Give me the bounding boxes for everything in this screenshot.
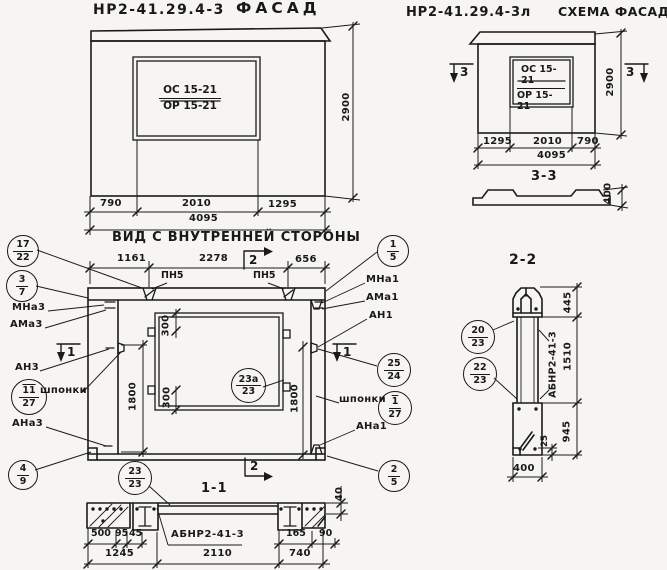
facade-dim-4095: 4095 [189, 214, 218, 224]
section11-dim-90: 90 [319, 529, 332, 539]
section11-dim-45: 45 [129, 529, 142, 539]
callout-2-5: 2 5 [378, 460, 410, 492]
callout-20-23: 20 23 [461, 320, 495, 354]
section-mark-1-right: 1 [343, 346, 351, 358]
main-dim-300-bottom: 300 [162, 386, 173, 410]
callout-1-27: 1 27 [378, 391, 412, 425]
schema-window-mark-top: ОС 15-21 [517, 64, 565, 89]
section-1-1-title: 1-1 [201, 482, 228, 495]
callout-23a-23: 23а 23 [231, 368, 266, 403]
section-3-3-title: 3-3 [531, 170, 558, 183]
section-2-2-title: 2-2 [509, 253, 537, 267]
callout-11-27: 11 27 [11, 379, 47, 415]
inner-view-title: ВИД С ВНУТРЕННЕЙ СТОРОНЫ [112, 231, 361, 244]
main-dim-1800-left: 1800 [128, 382, 139, 412]
schema-section-mark-3-right: 3 [626, 66, 634, 78]
schema-dim-2900: 2900 [605, 65, 617, 99]
facade-window-mark: ОС 15-21 ОР 15-21 [156, 84, 224, 112]
callout-3-7: 3 7 [6, 270, 38, 302]
facade-window-mark-top: ОС 15-21 [159, 84, 221, 99]
anchor-label-mna1: МНа1 [366, 275, 399, 285]
callout-4-9: 4 9 [8, 460, 38, 490]
schema-title-label: СХЕМА ФАСАДА [558, 6, 667, 19]
main-dim-1800-right: 1800 [290, 384, 301, 414]
profile-3-3-dim-400: 400 [603, 181, 614, 207]
pn5-label-left: ПН5 [161, 271, 184, 281]
section22-part-label: АБНР2-41-3 [548, 331, 559, 399]
section11-dim-40: 40 [335, 485, 345, 503]
facade-dim-1295: 1295 [268, 200, 297, 210]
facade-title-label: ФАСАД [236, 1, 321, 17]
section22-dim-445: 445 [563, 291, 574, 315]
schema-dim-790: 790 [577, 137, 599, 147]
section11-dim-500: 500 [91, 529, 111, 539]
schema-title-code: НР2-41.29.4-3л [406, 6, 531, 19]
callout-23-23: 23 23 [118, 461, 152, 495]
callout-25-24: 25 24 [377, 353, 411, 387]
schema-section-mark-3-left: 3 [460, 66, 468, 78]
facade-window-mark-bottom: ОР 15-21 [163, 99, 217, 112]
shponki-label-left: шпонки [40, 386, 87, 396]
callout-22-23: 22 23 [463, 357, 497, 391]
section22-dim-945: 945 [562, 420, 573, 444]
section22-dim-1510: 1510 [563, 343, 574, 371]
facade-dim-2010: 2010 [182, 199, 211, 209]
anchor-label-an1: АН1 [369, 311, 393, 321]
section22-dim-25: 25 [540, 433, 550, 449]
facade-title-code: НР2-41.29.4-3 [93, 3, 225, 17]
section11-part-label: АБНР2-41-3 [171, 530, 244, 540]
anchor-label-an3: АН3 [15, 363, 39, 373]
section-mark-2-top: 2 [249, 254, 257, 266]
schema-dim-2010: 2010 [533, 137, 562, 147]
section11-dim-740: 740 [289, 549, 311, 559]
facade-dim-790: 790 [100, 199, 122, 209]
schema-window-mark-bottom: ОР 15-21 [517, 89, 565, 112]
section11-dim-95: 95 [115, 529, 128, 539]
facade-dim-2900: 2900 [341, 90, 353, 124]
pn5-label-right: ПН5 [253, 271, 276, 281]
anchor-label-ana3: АНа3 [12, 419, 43, 429]
anchor-label-ama3: АМа3 [10, 320, 43, 330]
blueprint-sheet: НР2-41.29.4-3 ФАСАД НР2-41.29.4-3л СХЕМА… [0, 0, 667, 570]
section-mark-2-bottom: 2 [250, 460, 258, 472]
anchor-label-mna3: МНа3 [12, 303, 45, 313]
section-mark-1-left: 1 [67, 346, 75, 358]
callout-17-22: 17 22 [7, 235, 39, 267]
drawing-linework [0, 0, 667, 570]
section11-dim-1245: 1245 [105, 549, 134, 559]
callout-1-5: 1 5 [377, 235, 409, 267]
main-dim-656: 656 [295, 255, 317, 265]
anchor-label-ama1: АМа1 [366, 293, 399, 303]
schema-dim-4095: 4095 [537, 151, 566, 161]
section11-dim-165: 165 [286, 529, 306, 539]
anchor-label-ana1: АНа1 [356, 422, 387, 432]
main-dim-1161: 1161 [117, 254, 146, 264]
schema-dim-1295: 1295 [483, 137, 512, 147]
schema-window-mark: ОС 15-21 ОР 15-21 [517, 64, 565, 112]
section11-dim-2110: 2110 [203, 549, 232, 559]
main-dim-2278: 2278 [199, 254, 228, 264]
main-dim-300-top: 300 [161, 314, 172, 338]
section22-dim-400: 400 [513, 464, 535, 474]
